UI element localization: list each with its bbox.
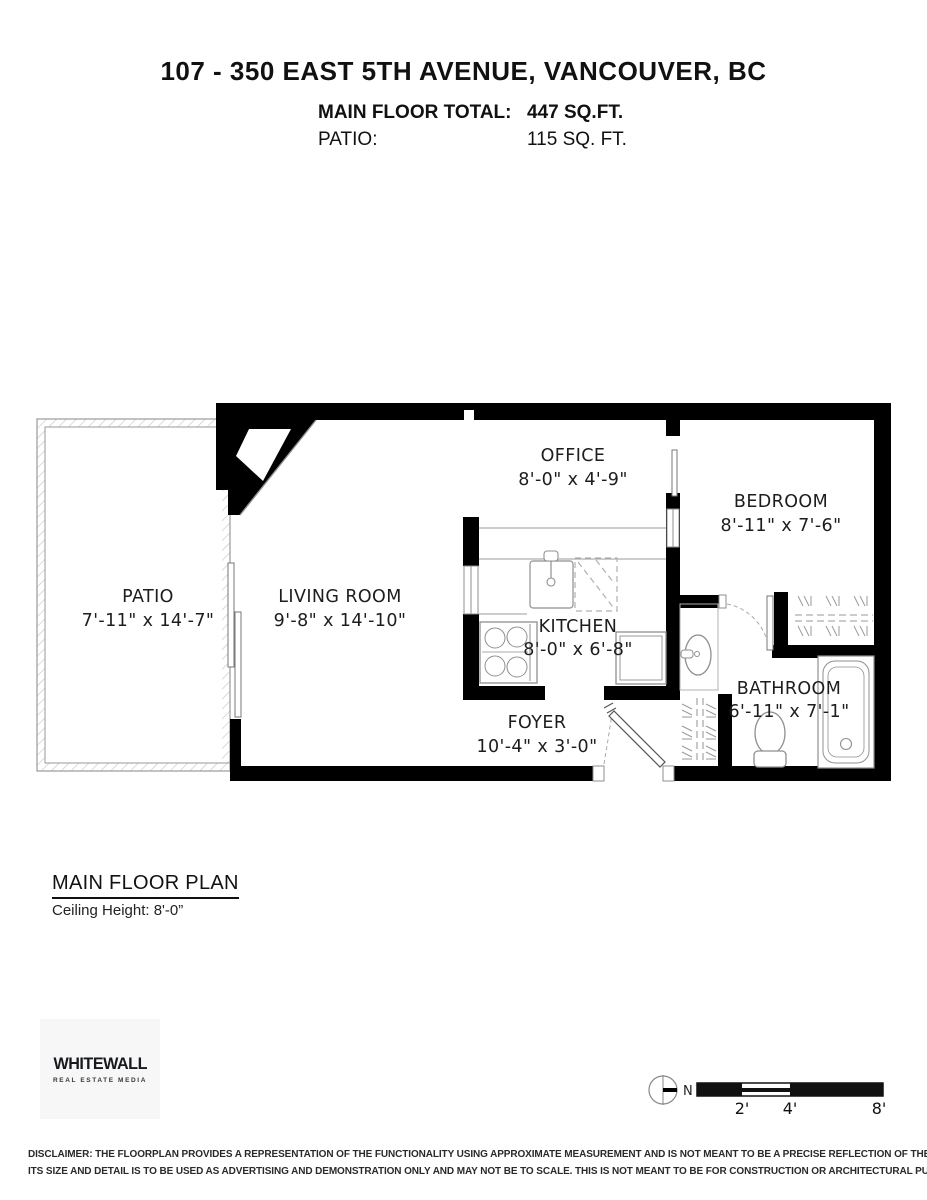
scale-tick-2ft: 2' bbox=[735, 1099, 750, 1118]
scale-bar-segment-2 bbox=[742, 1088, 790, 1092]
scale-bar: 2' 4' 8' bbox=[697, 1083, 886, 1118]
entry-door-jamb-left bbox=[593, 766, 604, 781]
office-label: OFFICE bbox=[541, 446, 606, 466]
closet-tick-marks bbox=[706, 746, 716, 759]
plan-caption-title: MAIN FLOOR PLAN bbox=[52, 872, 239, 899]
closet-tick-marks bbox=[798, 626, 811, 636]
scale-tick-4ft: 4' bbox=[783, 1099, 798, 1118]
brand-logo: WHITEWALL REAL ESTATE MEDIA bbox=[40, 1019, 160, 1119]
closet-tick-marks bbox=[826, 596, 839, 606]
bathroom-door-leaf bbox=[767, 596, 773, 650]
vanity-faucet-icon bbox=[681, 650, 693, 658]
living-room-dims: 9'-8" x 14'-10" bbox=[274, 611, 407, 631]
corner-cabinet-diagonal bbox=[578, 562, 613, 607]
wall-bottom-left bbox=[233, 766, 593, 781]
wall-mid-top-stub bbox=[666, 420, 680, 436]
office-dims: 8'-0" x 4'-9" bbox=[518, 470, 628, 490]
scale-bar-segment-3 bbox=[790, 1083, 883, 1096]
disclaimer-line-1: DISCLAIMER: THE FLOORPLAN PROVIDES A REP… bbox=[28, 1146, 908, 1163]
corner-cabinet-diagonal-2 bbox=[596, 560, 614, 583]
bathroom-dims: 6'-11" x 7'-1" bbox=[728, 702, 849, 722]
patio-dims: 7'-11" x 14'-7" bbox=[82, 611, 215, 631]
closet-tick-marks bbox=[798, 596, 811, 606]
patio-door-panel-2 bbox=[235, 612, 241, 717]
wall-kitchen-left-lower bbox=[463, 614, 479, 686]
brand-logo-name: WHITEWALL bbox=[53, 1054, 147, 1074]
closet-tick-marks bbox=[854, 626, 867, 636]
top-wall-jamb bbox=[464, 410, 474, 420]
scale-tick-8ft: 8' bbox=[872, 1099, 887, 1118]
entry-door bbox=[604, 703, 665, 767]
closet-tick-marks bbox=[682, 726, 692, 739]
bathroom-label: BATHROOM bbox=[737, 679, 841, 699]
foyer-dims: 10'-4" x 3'-0" bbox=[476, 737, 597, 757]
entry-door-swing-arc bbox=[604, 713, 612, 764]
wall-kitchen-left-upper bbox=[463, 517, 479, 566]
closet-tick-marks bbox=[706, 704, 716, 717]
disclaimer-line-2: ITS SIZE AND DETAIL IS TO BE USED AS ADV… bbox=[28, 1163, 908, 1180]
kitchen-dims: 8'-0" x 6'-8" bbox=[523, 640, 633, 660]
bedroom-closet-shelving bbox=[795, 596, 873, 636]
bedroom-sliding-door-panel bbox=[672, 450, 677, 496]
kitchen-faucet-icon bbox=[544, 551, 558, 561]
closet-tick-marks bbox=[826, 626, 839, 636]
bathroom-door-swing-arc bbox=[727, 604, 769, 651]
scale-bar-segment-1 bbox=[697, 1083, 742, 1096]
bedroom-label: BEDROOM bbox=[734, 492, 828, 512]
bathroom-door bbox=[727, 596, 773, 651]
kitchen-label: KITCHEN bbox=[539, 617, 618, 637]
wall-right bbox=[874, 403, 891, 781]
wall-kitchen-bottom-left bbox=[463, 686, 545, 700]
disclaimer: DISCLAIMER: THE FLOORPLAN PROVIDES A REP… bbox=[28, 1146, 908, 1180]
ceiling-height-note: Ceiling Height: 8'-0” bbox=[52, 902, 183, 919]
entry-door-jamb-right bbox=[663, 766, 674, 781]
entry-door-leaf bbox=[609, 711, 665, 767]
closet-tick-marks bbox=[682, 704, 692, 717]
compass-north-label: N bbox=[683, 1084, 693, 1099]
entry-closet-shelving bbox=[682, 698, 716, 762]
corner-cabinet-icon bbox=[575, 558, 617, 611]
floorplan-page: { "header": { "title": "107 - 350 EAST 5… bbox=[0, 0, 927, 1200]
closet-tick-marks bbox=[682, 746, 692, 759]
living-room-label: LIVING ROOM bbox=[278, 587, 401, 607]
toilet-tank bbox=[754, 751, 786, 767]
wall-top bbox=[216, 403, 890, 420]
foyer-label: FOYER bbox=[508, 713, 567, 733]
patio-door-panel-1 bbox=[228, 563, 234, 667]
bedroom-dims: 8'-11" x 7'-6" bbox=[720, 516, 841, 536]
closet-tick-marks bbox=[854, 596, 867, 606]
wall-bedroom-closet-vertical bbox=[774, 592, 788, 652]
wall-bathroom-hall-top bbox=[677, 595, 719, 608]
compass-icon: N bbox=[649, 1075, 693, 1105]
wall-patio-stub-bottom bbox=[230, 719, 241, 781]
closet-tick-marks bbox=[706, 726, 716, 739]
bathroom-door-jamb bbox=[719, 595, 726, 608]
patio-label: PATIO bbox=[122, 587, 174, 607]
brand-logo-tagline: REAL ESTATE MEDIA bbox=[53, 1077, 147, 1084]
